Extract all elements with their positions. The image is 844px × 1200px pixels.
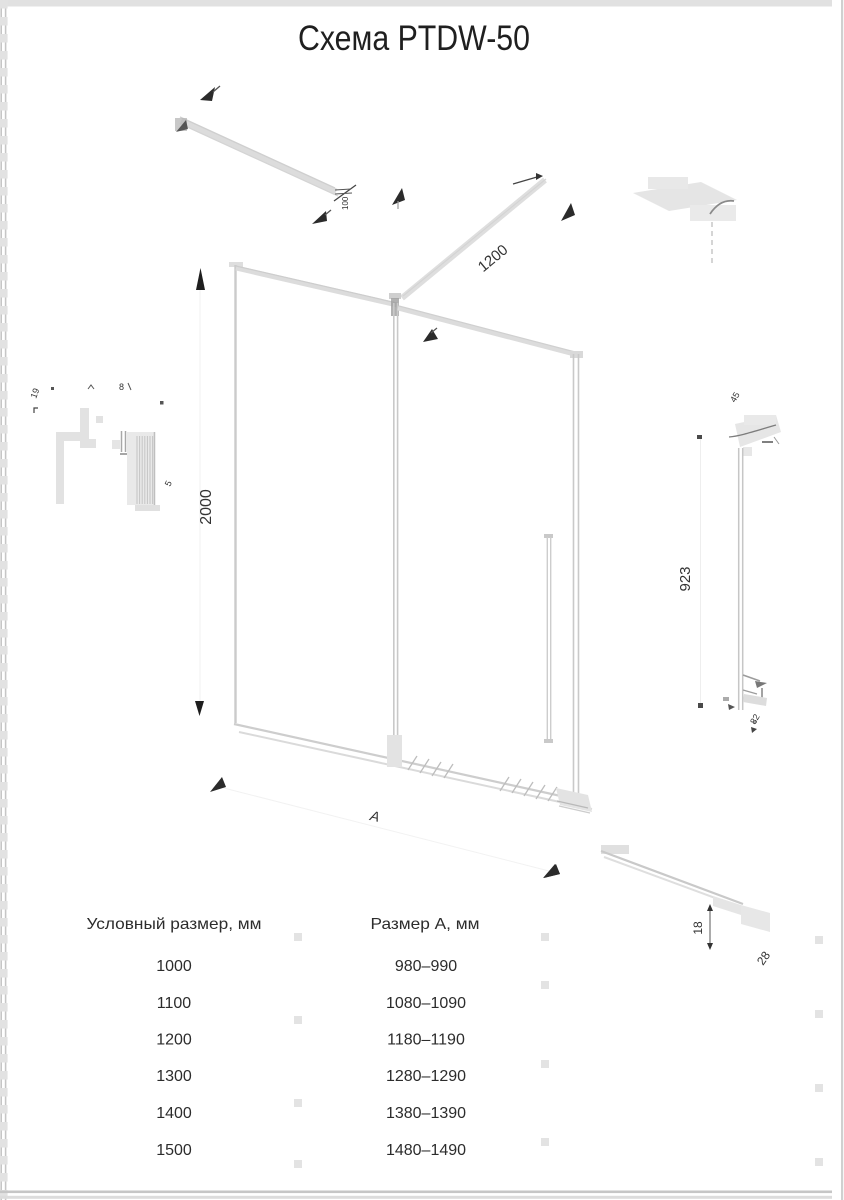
- svg-text:1200: 1200: [156, 1032, 192, 1049]
- svg-text:980–990: 980–990: [395, 958, 457, 975]
- svg-text:1380–1390: 1380–1390: [386, 1105, 466, 1122]
- svg-text:1480–1490: 1480–1490: [386, 1142, 466, 1159]
- svg-text:1000: 1000: [156, 958, 192, 975]
- svg-text:18: 18: [691, 921, 705, 935]
- svg-text:8: 8: [119, 382, 124, 392]
- svg-text:1180–1190: 1180–1190: [387, 1032, 465, 1049]
- svg-text:Условный размер, мм: Условный размер, мм: [87, 916, 262, 933]
- svg-text:1080–1090: 1080–1090: [386, 995, 466, 1012]
- svg-text:1100: 1100: [157, 995, 192, 1012]
- svg-text:Схема PTDW-50: Схема PTDW-50: [298, 19, 530, 58]
- svg-text:Размер А, мм: Размер А, мм: [371, 916, 480, 933]
- svg-text:1500: 1500: [156, 1142, 192, 1159]
- svg-text:923: 923: [677, 566, 694, 591]
- svg-text:1280–1290: 1280–1290: [386, 1068, 466, 1085]
- svg-text:2000: 2000: [198, 489, 215, 525]
- svg-text:100: 100: [341, 196, 350, 210]
- svg-text:1300: 1300: [156, 1068, 192, 1085]
- svg-text:1400: 1400: [156, 1105, 192, 1122]
